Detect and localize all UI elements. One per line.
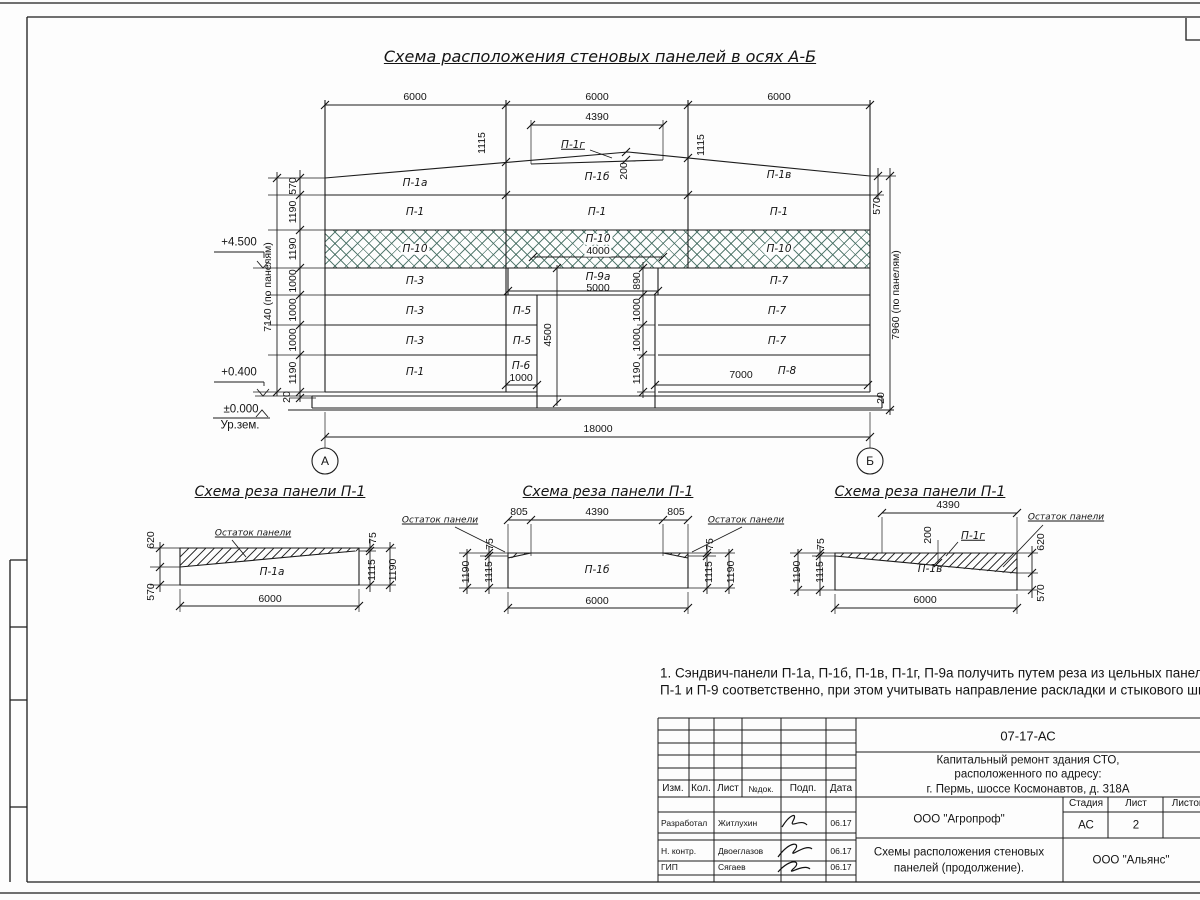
level-mark-0400: +0.400: [221, 367, 257, 379]
panel-r1-3: П-1в: [767, 170, 792, 181]
panel-r6-1: П-3: [406, 336, 424, 347]
dim-bay1: 6000: [403, 92, 426, 103]
label-ridge-panel: П-1г: [561, 140, 585, 151]
tb-date-1: 06.17: [830, 819, 851, 828]
scheme2-dim-4390: 4390: [585, 507, 608, 518]
panel-r5-1: П-3: [406, 306, 424, 317]
scheme1-dim-75: 75: [368, 532, 379, 544]
scheme1-dim-620: 620: [146, 531, 157, 549]
dim-p8-width: 7000: [729, 370, 752, 381]
panel-r6-2: П-5: [513, 336, 531, 347]
scheme2-dim-6000: 6000: [585, 596, 608, 607]
dim-left-1000c: 1000: [288, 328, 299, 351]
scheme2-dim-1190-right: 1190: [726, 561, 737, 584]
panel-r2-2: П-1: [588, 207, 606, 218]
dim-total-width: 18000: [583, 424, 612, 435]
dim-left-1000b: 1000: [288, 298, 299, 321]
tb-stage-value: АС: [1078, 820, 1094, 832]
panel-r5-3: П-7: [768, 306, 786, 317]
scheme1-dim-570: 570: [146, 583, 157, 601]
tb-org-client: ООО "Альянс": [1093, 855, 1170, 867]
tb-org-designer: ООО "Агропроф": [913, 814, 1004, 826]
tb-col-kol: Кол.: [691, 784, 711, 794]
scheme2-remnant-label-left: Остаток панели: [402, 517, 478, 526]
panel-r4-1: П-3: [406, 276, 424, 287]
axis-bubble-a: А: [321, 455, 329, 467]
tb-date-2: 06.17: [830, 847, 851, 856]
dim-door-chain-1000a: 1000: [632, 298, 643, 321]
scheme2-dim-1190-left: 1190: [461, 561, 472, 584]
scheme2-panel-label: П-1б: [585, 565, 610, 576]
dim-right-570: 570: [872, 197, 883, 215]
panel-r7-2: П-6: [512, 361, 530, 372]
scheme2-dim-805-right: 805: [667, 507, 685, 518]
scheme3-dim-6000: 6000: [913, 595, 936, 606]
note-line-2: П-1 и П-9 соответственно, при этом учиты…: [660, 683, 1200, 697]
scheme3-dim-200: 200: [923, 526, 934, 544]
panel-r7-3: П-8: [778, 366, 796, 377]
panel-r5-2: П-5: [513, 306, 531, 317]
tb-col-data: Дата: [830, 784, 852, 794]
tb-date-3: 06.17: [830, 863, 851, 872]
dim-door-chain-1000b: 1000: [632, 328, 643, 351]
tb-name-2: Двоеглазов: [718, 847, 763, 856]
scheme3-ridge-label: П-1г: [961, 531, 985, 542]
tb-col-list: Лист: [717, 784, 739, 794]
scheme2-dim-75-left: 75: [485, 538, 496, 550]
dim-left-1190a: 1190: [288, 201, 299, 224]
panel-r2-3: П-1: [770, 207, 788, 218]
tb-drawing-title-2: панелей (продолжение).: [894, 863, 1024, 875]
dim-left-1190b: 1190: [288, 238, 299, 261]
scheme1-dim-6000: 6000: [258, 594, 281, 605]
scheme3-title: Схема реза панели П-1: [835, 485, 1006, 499]
tb-col-izm: Изм.: [662, 784, 683, 794]
dim-left-20: 20: [282, 391, 293, 403]
scheme3-dim-1190: 1190: [792, 561, 803, 584]
scheme2-remnant-label-right: Остаток панели: [708, 517, 784, 526]
dim-right-20: 20: [876, 392, 887, 404]
level-mark-0000: ±0.000: [223, 404, 258, 416]
dim-left-1190c: 1190: [288, 362, 299, 385]
dim-p10-width: 4000: [584, 246, 611, 257]
dim-door-chain-1190: 1190: [632, 362, 643, 385]
scheme2-dim-1115-right: 1115: [704, 561, 715, 583]
scheme3-dim-4390: 4390: [936, 500, 959, 511]
ground-level-label: Ур.зем.: [220, 420, 259, 432]
panel-r3-1: П-10: [400, 244, 429, 255]
scheme1-dim-1115: 1115: [367, 559, 378, 581]
tb-name-1: Житлухин: [718, 819, 757, 828]
dim-door-chain-890: 890: [632, 272, 643, 290]
scheme3-dim-570: 570: [1036, 584, 1047, 602]
main-title: Схема расположения стеновых панелей в ос…: [384, 49, 816, 65]
signature-strokes: [778, 815, 812, 872]
tb-role-3: ГИП: [661, 863, 678, 872]
dim-left-570: 570: [288, 177, 299, 195]
note-line-1: 1. Сэндвич-панели П-1а, П-1б, П-1в, П-1г…: [660, 666, 1200, 680]
tb-name-3: Сягаев: [718, 863, 746, 872]
dim-door-height: 4500: [543, 323, 554, 346]
panel-r4-2: П-9а: [586, 272, 611, 283]
tb-sheet-header: Лист: [1125, 799, 1147, 809]
panel-r7-1: П-1: [406, 367, 424, 378]
tb-drawing-title-1: Схемы расположения стеновых: [874, 847, 1044, 859]
scheme3-remnant-label: Остаток панели: [1028, 514, 1104, 523]
tb-project-line3: г. Пермь, шоссе Космонавтов, д. 318А: [927, 784, 1130, 796]
dim-p9a-width: 5000: [586, 283, 609, 294]
level-mark-4500: +4.500: [221, 237, 257, 249]
tb-project-line1: Капитальный ремонт здания СТО,: [936, 755, 1119, 767]
panel-r4-3: П-7: [770, 276, 788, 287]
scheme3-dim-620: 620: [1036, 533, 1047, 551]
panel-r1-2: П-1б: [585, 172, 610, 183]
scheme2-dim-805-left: 805: [510, 507, 528, 518]
tb-sheets-header: Листов: [1172, 799, 1200, 809]
scheme3-panel-label: П-1в: [918, 564, 943, 575]
tb-doc-number: 07-17-АС: [1000, 730, 1055, 743]
scheme1-dim-1190: 1190: [388, 559, 399, 582]
tb-role-2: Н. контр.: [661, 847, 696, 856]
tb-stage-header: Стадия: [1069, 799, 1103, 809]
scheme3-dim-75: 75: [816, 538, 827, 550]
tb-col-ndok: №док.: [749, 785, 774, 794]
scheme2-title: Схема реза панели П-1: [523, 485, 694, 499]
tb-role-1: Разработал: [661, 819, 707, 828]
panel-r2-1: П-1: [406, 207, 424, 218]
drawing-sheet: Схема расположения стеновых панелей в ос…: [0, 0, 1200, 900]
dim-1115-right: 1115: [696, 134, 707, 156]
panel-r3-2: П-10: [583, 234, 612, 245]
scheme2-dim-75-right: 75: [705, 538, 716, 550]
dim-bay3: 6000: [767, 92, 790, 103]
dim-1115-left: 1115: [477, 132, 488, 154]
scheme1-title: Схема реза панели П-1: [195, 485, 366, 499]
panel-r3-3: П-10: [764, 244, 793, 255]
tb-col-podp: Подп.: [790, 784, 817, 794]
panel-r1-1: П-1а: [403, 178, 428, 189]
dim-bay2: 6000: [585, 92, 608, 103]
dim-right-total: 7960 (по панелям): [891, 250, 902, 340]
dim-ridge-thickness: 200: [619, 162, 630, 180]
scheme2-dim-1115-left: 1115: [484, 561, 495, 583]
tb-sheet-value: 2: [1133, 820, 1139, 832]
dim-p6-width: 1000: [509, 373, 532, 384]
dim-ridge-width: 4390: [585, 112, 608, 123]
dim-left-total: 7140 (по панелям): [263, 242, 274, 332]
axis-bubble-b: Б: [866, 455, 874, 467]
scheme1-panel-label: П-1а: [260, 567, 285, 578]
dim-left-1000a: 1000: [288, 269, 299, 292]
scheme1-remnant-label: Остаток панели: [215, 530, 291, 539]
scheme3-dim-1115: 1115: [815, 561, 826, 583]
tb-project-line2: расположенного по адресу:: [954, 769, 1101, 781]
panel-r6-3: П-7: [768, 336, 786, 347]
